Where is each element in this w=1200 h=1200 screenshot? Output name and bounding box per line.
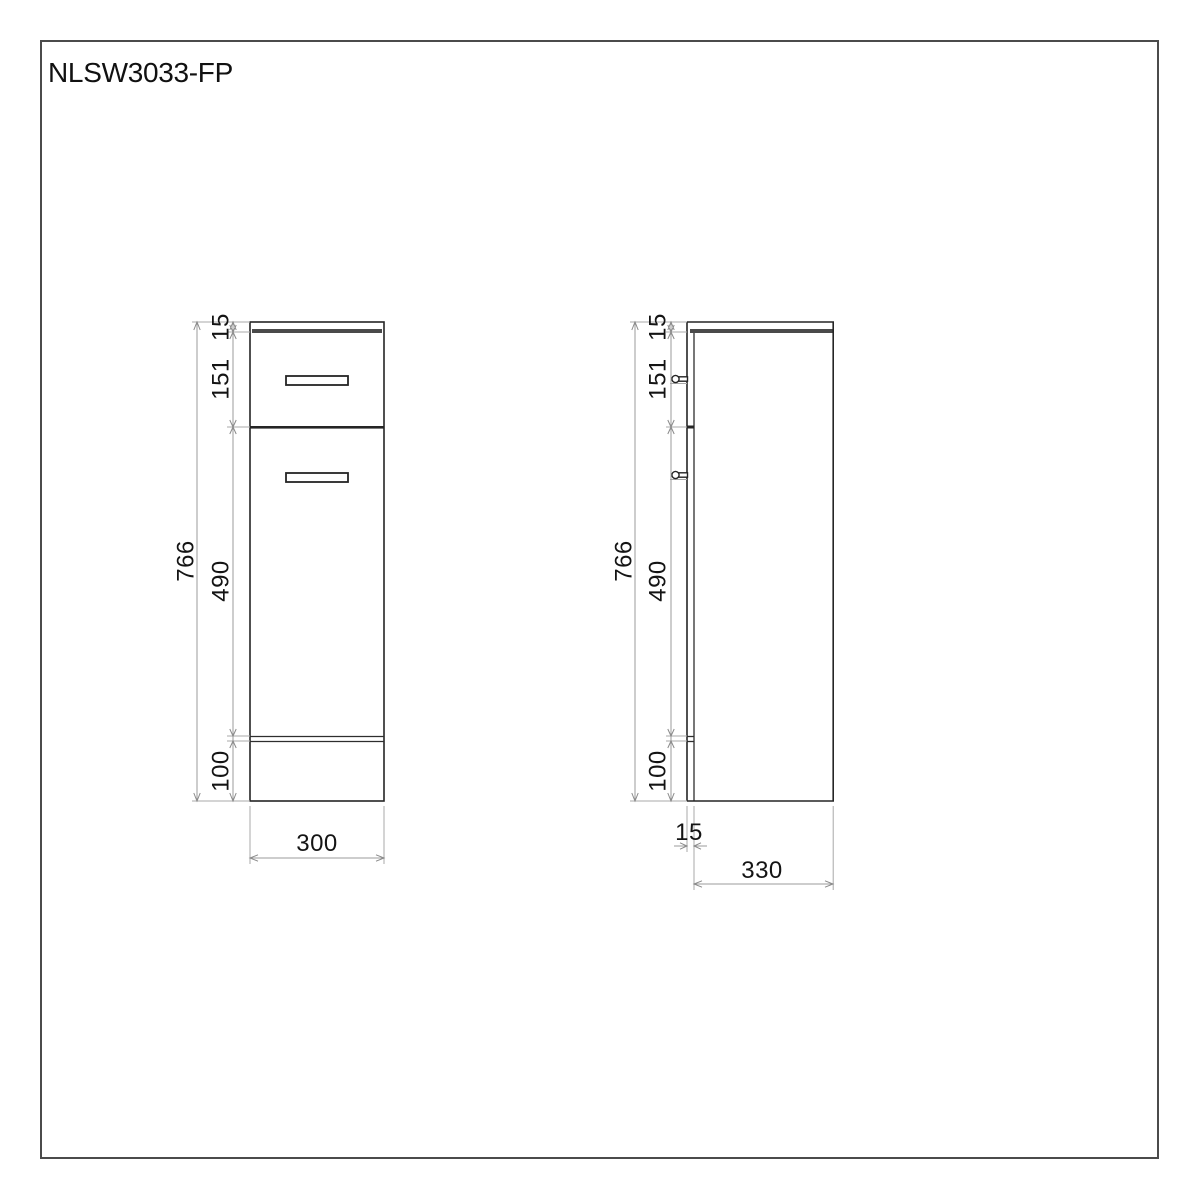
front-top-panel-band	[252, 329, 382, 333]
front-door-label: 490	[207, 560, 234, 602]
front-plinth-label: 100	[207, 750, 234, 792]
side-top-panel-label: 15	[644, 313, 671, 341]
side-view: 766 15 151 490 100 15 330	[610, 313, 834, 890]
front-drawer-handle	[286, 376, 348, 385]
front-cabinet-outline	[250, 322, 384, 801]
front-drawer-divider	[250, 426, 384, 429]
side-door-handle-knob	[672, 471, 679, 478]
side-drawer-divider	[687, 426, 694, 429]
side-panel-thickness-label: 15	[675, 819, 703, 846]
side-top-panel-band	[690, 329, 834, 333]
front-view: 766 15 151 490 100 300	[172, 313, 384, 864]
front-width-label: 300	[296, 830, 338, 857]
front-drawer-label: 151	[207, 358, 234, 400]
side-depth-label: 330	[741, 857, 783, 884]
drawing-title: NLSW3033-FP	[48, 57, 233, 88]
side-drawer-handle-knob	[672, 375, 679, 382]
drawing-page: NLSW3033-FP 766 15 151	[0, 0, 1200, 1200]
front-top-panel-label: 15	[207, 313, 234, 341]
side-height-label: 766	[610, 540, 637, 582]
side-door-label: 490	[644, 560, 671, 602]
front-door-handle	[286, 473, 348, 482]
side-plinth-label: 100	[644, 750, 671, 792]
side-drawer-label: 151	[644, 358, 671, 400]
front-height-label: 766	[172, 540, 199, 582]
technical-drawing: NLSW3033-FP 766 15 151	[0, 0, 1200, 1200]
